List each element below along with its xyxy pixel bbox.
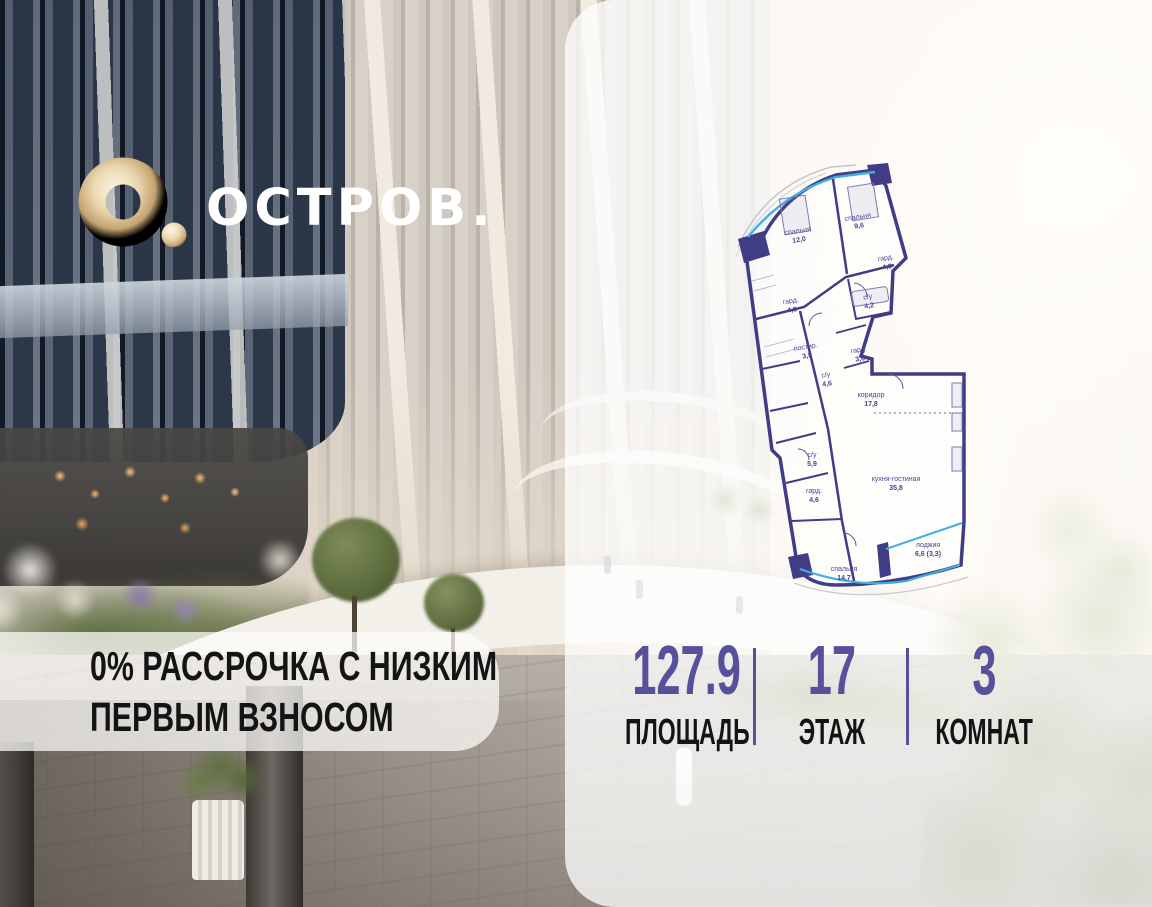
svg-text:с/у: с/у xyxy=(808,452,817,459)
svg-text:с/у: с/у xyxy=(821,371,831,379)
promo-line-1: 0% РАССРОЧКА С НИЗКИМ xyxy=(90,641,393,691)
stat-floor-label: ЭТАЖ xyxy=(798,711,864,753)
svg-text:кухня-гостиная: кухня-гостиная xyxy=(872,476,921,483)
brand-name: ОСТРОВ. xyxy=(206,179,496,238)
svg-text:5,9: 5,9 xyxy=(807,461,817,468)
stat-area: 127.9 ПЛОЩАДЬ xyxy=(575,638,777,756)
brand-logo: ОСТРОВ. xyxy=(78,155,548,255)
svg-text:с/у: с/у xyxy=(863,293,873,301)
stat-rooms-label: КОМНАТ xyxy=(935,711,1032,753)
promo-line-2: ПЕРВЫМ ВЗНОСОМ xyxy=(90,692,393,742)
svg-text:гард.: гард. xyxy=(806,488,822,495)
svg-text:гард.: гард. xyxy=(850,346,867,355)
stat-area-value: 127.9 xyxy=(633,638,742,702)
tree xyxy=(312,518,400,602)
stat-area-label: ПЛОЩАДЬ xyxy=(625,711,750,753)
svg-text:4,6: 4,6 xyxy=(809,497,819,504)
stat-rooms: 3 КОМНАТ xyxy=(908,638,1060,756)
plant-pot xyxy=(192,800,244,880)
stat-floor-value: 17 xyxy=(807,638,855,702)
gold-dot-icon xyxy=(162,223,187,248)
floor-plan: спальня 12,0 спальня 9,6 гард. 4,3 с/у 4… xyxy=(736,161,1000,611)
svg-text:коридор: коридор xyxy=(858,392,885,399)
svg-text:35,8: 35,8 xyxy=(889,485,903,492)
stat-rooms-value: 3 xyxy=(972,638,996,702)
listing-banner: ОСТРОВ. xyxy=(0,0,1152,907)
svg-text:спальня: спальня xyxy=(831,566,858,573)
tree xyxy=(424,574,484,632)
svg-text:14,7: 14,7 xyxy=(837,575,851,582)
promo-banner: 0% РАССРОЧКА С НИЗКИМ ПЕРВЫМ ВЗНОСОМ xyxy=(0,632,499,751)
svg-text:17,8: 17,8 xyxy=(864,401,878,408)
stat-floor: 17 ЭТАЖ xyxy=(755,638,908,756)
apartment-outline xyxy=(744,170,964,585)
svg-text:лоджия: лоджия xyxy=(916,542,941,549)
torus-o-icon xyxy=(92,171,154,233)
svg-text:6,6 (3,3): 6,6 (3,3) xyxy=(915,551,941,558)
brand-logo-icon xyxy=(78,155,203,255)
pillar xyxy=(0,742,34,907)
